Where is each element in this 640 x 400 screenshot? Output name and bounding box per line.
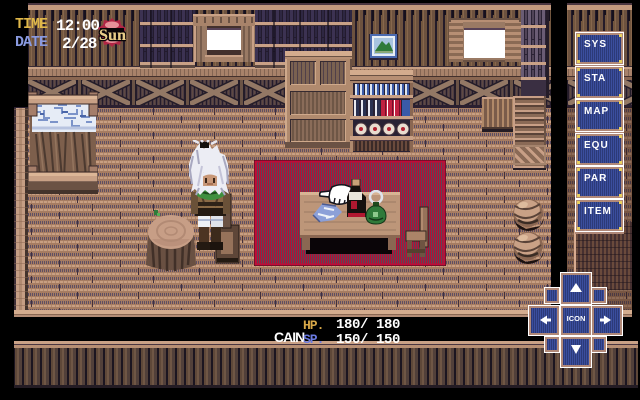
svg-text:Sun: Sun xyxy=(99,27,126,44)
